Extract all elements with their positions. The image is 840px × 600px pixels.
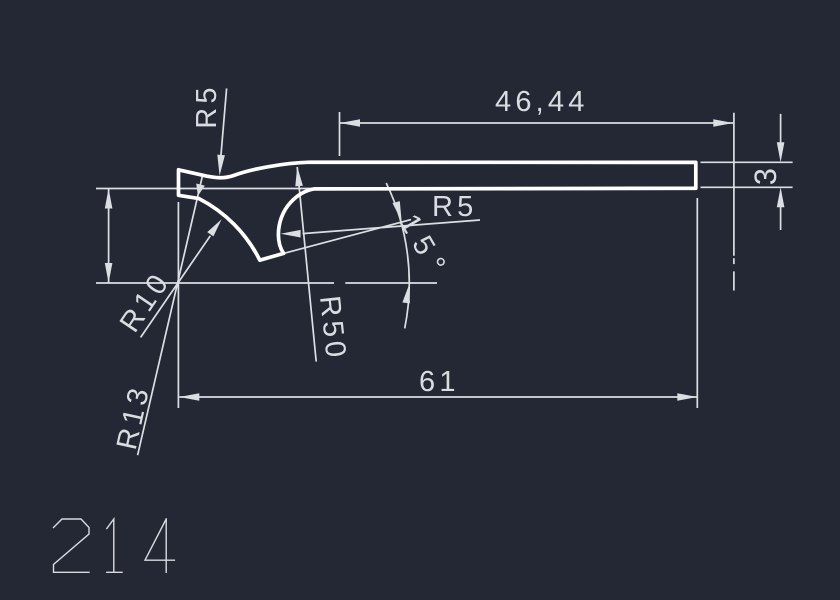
svg-text:R5: R5 — [432, 191, 477, 223]
svg-text:R5: R5 — [191, 83, 223, 128]
svg-text:R50: R50 — [313, 294, 352, 363]
svg-text:61: 61 — [419, 366, 460, 398]
svg-text:46,44: 46,44 — [495, 86, 589, 118]
svg-text:3: 3 — [748, 164, 783, 185]
